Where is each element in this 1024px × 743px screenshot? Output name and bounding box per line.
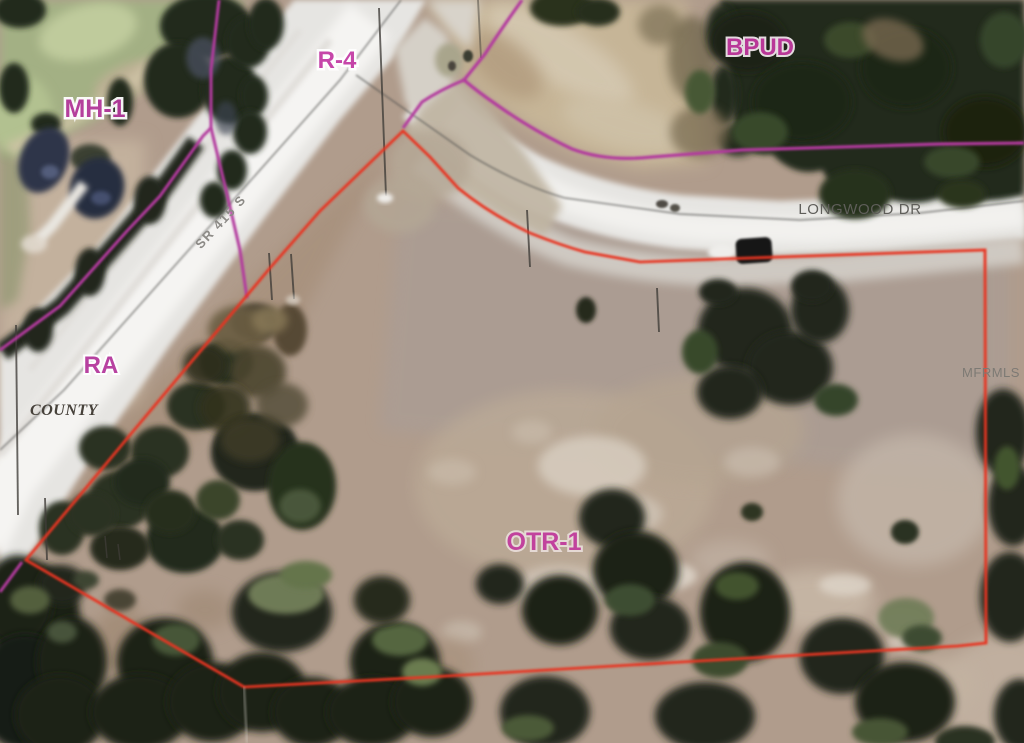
svg-text:COUNTY: COUNTY (30, 402, 99, 419)
svg-text:BPUD: BPUD (726, 34, 794, 61)
svg-text:R-4: R-4 (318, 47, 357, 74)
svg-text:LONGWOOD DR: LONGWOOD DR (798, 201, 921, 218)
svg-text:RA: RA (84, 352, 119, 379)
svg-text:MFRMLS: MFRMLS (962, 365, 1020, 380)
svg-text:MH-1: MH-1 (64, 95, 125, 123)
svg-text:OTR-1: OTR-1 (507, 528, 582, 556)
